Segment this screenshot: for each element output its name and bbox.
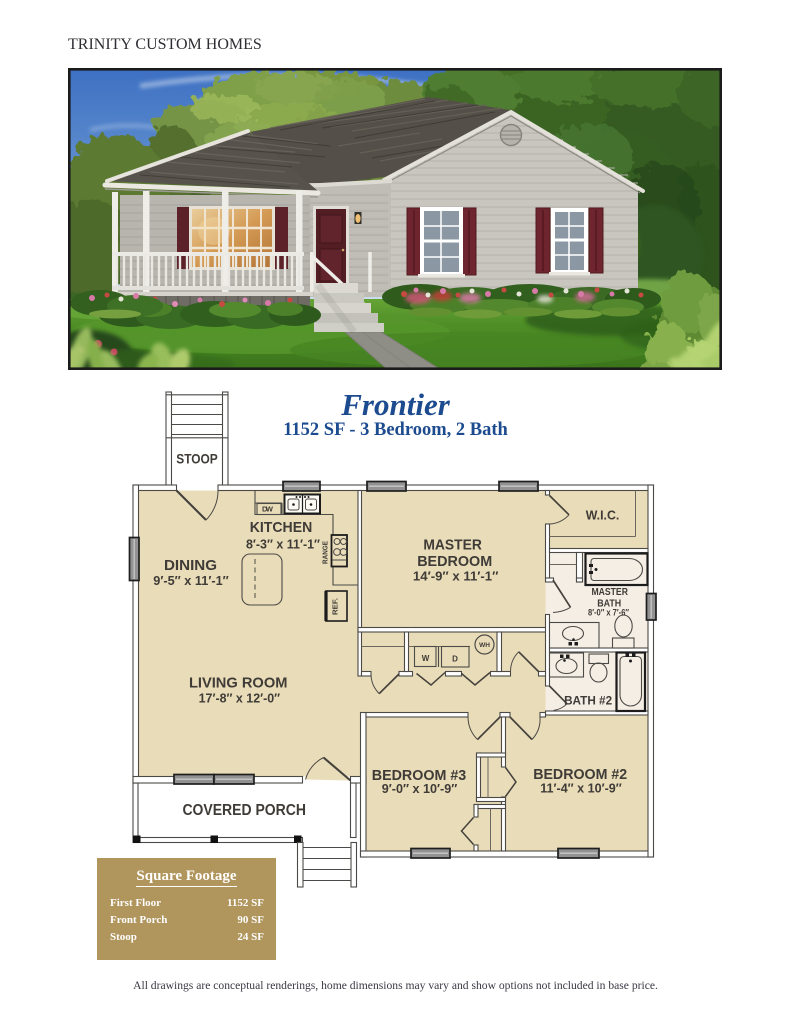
svg-text:DINING: DINING [164, 557, 217, 574]
svg-text:MASTER: MASTER [591, 586, 628, 598]
svg-text:MASTER: MASTER [423, 536, 482, 553]
svg-text:17′-8″ x 12′-0″: 17′-8″ x 12′-0″ [199, 691, 281, 706]
svg-text:STOOP: STOOP [176, 452, 218, 467]
svg-text:DW: DW [262, 505, 274, 514]
svg-text:LIVING ROOM: LIVING ROOM [189, 674, 288, 691]
svg-text:BEDROOM: BEDROOM [417, 553, 492, 570]
svg-text:KITCHEN: KITCHEN [250, 519, 313, 536]
svg-text:D: D [452, 655, 458, 664]
svg-text:W.I.C.: W.I.C. [586, 507, 620, 522]
svg-text:RANGE: RANGE [321, 541, 330, 564]
svg-text:8′-0″ x 7′-6″: 8′-0″ x 7′-6″ [588, 608, 630, 618]
svg-text:WH: WH [479, 642, 490, 649]
svg-text:BATH #2: BATH #2 [564, 694, 612, 708]
svg-text:9′-5″ x 11′-1″: 9′-5″ x 11′-1″ [153, 573, 229, 588]
svg-text:9′-0″ x 10′-9″: 9′-0″ x 10′-9″ [382, 782, 458, 796]
svg-text:REF.: REF. [331, 598, 340, 615]
svg-text:14′-9″ x 11′-1″: 14′-9″ x 11′-1″ [413, 569, 499, 584]
svg-text:COVERED PORCH: COVERED PORCH [182, 802, 306, 819]
svg-text:W: W [422, 654, 430, 663]
svg-text:11′-4″ x 10′-9″: 11′-4″ x 10′-9″ [540, 782, 622, 796]
svg-text:8′-3″ x 11′-1″: 8′-3″ x 11′-1″ [246, 537, 320, 552]
